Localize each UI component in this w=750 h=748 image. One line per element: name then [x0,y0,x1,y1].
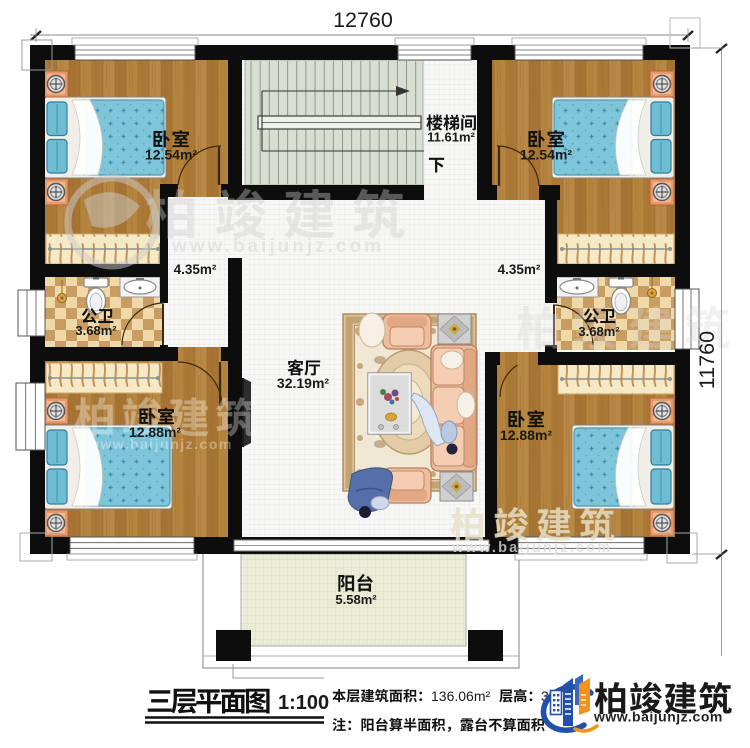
svg-text:1:100: 1:100 [278,692,329,714]
svg-text:12.88m²: 12.88m² [500,427,552,443]
svg-text:32.19m²: 32.19m² [277,375,329,391]
svg-text:4.35m²: 4.35m² [498,262,541,277]
svg-text:11.61m²: 11.61m² [427,130,475,145]
svg-text:4.35m²: 4.35m² [174,262,217,277]
svg-text:3.68m²: 3.68m² [578,324,620,339]
svg-text:5.58m²: 5.58m² [335,592,377,607]
svg-text:136.06m²: 136.06m² [431,688,490,704]
svg-text:12760: 12760 [333,8,393,32]
svg-text:3.68m²: 3.68m² [75,323,117,338]
svg-text:11760: 11760 [695,331,719,389]
svg-text:www.baijunjz.com: www.baijunjz.com [171,236,384,257]
svg-text:www.baijunjz.com: www.baijunjz.com [593,709,723,725]
svg-text:12.88m²: 12.88m² [129,424,181,440]
svg-text:12.54m²: 12.54m² [520,147,572,163]
svg-text:12.54m²: 12.54m² [145,147,197,163]
svg-text:www.baijunjz.com: www.baijunjz.com [451,540,612,556]
